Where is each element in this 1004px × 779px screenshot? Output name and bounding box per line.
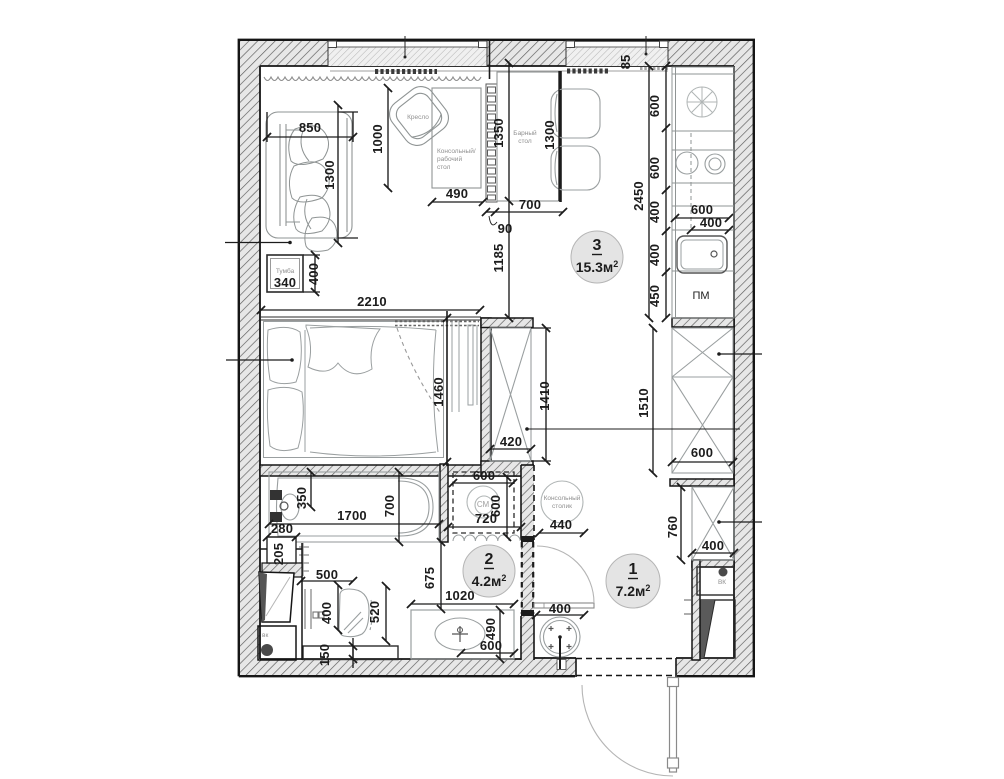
svg-text:600: 600 — [647, 95, 662, 117]
svg-text:столик: столик — [552, 503, 572, 510]
svg-text:1300: 1300 — [322, 160, 337, 190]
svg-text:420: 420 — [500, 434, 522, 449]
svg-text:вк: вк — [262, 632, 268, 639]
svg-text:1460: 1460 — [431, 377, 446, 407]
svg-text:340: 340 — [274, 275, 296, 290]
svg-text:1: 1 — [629, 561, 638, 578]
svg-text:1510: 1510 — [636, 388, 651, 418]
svg-text:Кресло: Кресло — [407, 114, 429, 121]
svg-text:2450: 2450 — [631, 181, 646, 211]
svg-text:1185: 1185 — [491, 243, 506, 272]
svg-text:1350: 1350 — [491, 118, 506, 148]
svg-text:85: 85 — [618, 55, 633, 69]
svg-text:490: 490 — [446, 186, 468, 201]
svg-text:520: 520 — [367, 601, 382, 623]
svg-text:280: 280 — [271, 521, 293, 536]
svg-text:400: 400 — [549, 601, 571, 616]
svg-text:Барный: Барный — [513, 129, 537, 137]
svg-text:стол: стол — [437, 164, 451, 171]
svg-text:600: 600 — [647, 157, 662, 179]
svg-text:1410: 1410 — [537, 381, 552, 411]
svg-text:600: 600 — [691, 445, 713, 460]
svg-text:675: 675 — [422, 567, 437, 589]
svg-text:490: 490 — [483, 618, 498, 640]
svg-text:600: 600 — [473, 468, 495, 483]
svg-text:2210: 2210 — [357, 294, 387, 309]
svg-text:1000: 1000 — [370, 124, 385, 154]
svg-text:700: 700 — [382, 495, 397, 517]
svg-text:500: 500 — [316, 567, 338, 582]
svg-text:2: 2 — [485, 551, 494, 568]
svg-text:400: 400 — [647, 244, 662, 266]
svg-text:4.2м2: 4.2м2 — [472, 573, 507, 589]
svg-text:400: 400 — [647, 201, 662, 223]
svg-text:850: 850 — [299, 120, 321, 135]
svg-text:1300: 1300 — [542, 120, 557, 150]
svg-text:3: 3 — [593, 237, 602, 254]
svg-text:760: 760 — [665, 516, 680, 538]
svg-text:ВК: ВК — [718, 579, 726, 586]
svg-text:400: 400 — [306, 263, 321, 285]
svg-text:рабочий: рабочий — [437, 155, 462, 163]
svg-text:150: 150 — [317, 644, 332, 666]
svg-text:Тумба: Тумба — [276, 267, 295, 275]
svg-text:400: 400 — [319, 602, 334, 624]
svg-text:350: 350 — [294, 487, 309, 509]
svg-text:450: 450 — [647, 285, 662, 307]
svg-text:1020: 1020 — [445, 588, 475, 603]
svg-text:90: 90 — [498, 221, 513, 236]
svg-text:205: 205 — [271, 543, 286, 565]
svg-text:400: 400 — [700, 215, 722, 230]
svg-text:7.2м2: 7.2м2 — [616, 583, 651, 599]
svg-text:720: 720 — [475, 511, 497, 526]
svg-text:стол: стол — [518, 138, 532, 145]
svg-text:Консольный/: Консольный/ — [437, 147, 476, 155]
svg-text:600: 600 — [480, 638, 502, 653]
svg-text:15.3м2: 15.3м2 — [576, 259, 619, 275]
svg-text:ПМ: ПМ — [692, 290, 709, 302]
svg-text:1700: 1700 — [337, 508, 367, 523]
svg-text:Консольный: Консольный — [544, 494, 581, 502]
svg-text:400: 400 — [702, 538, 724, 553]
svg-text:700: 700 — [519, 197, 541, 212]
svg-text:440: 440 — [550, 517, 572, 532]
